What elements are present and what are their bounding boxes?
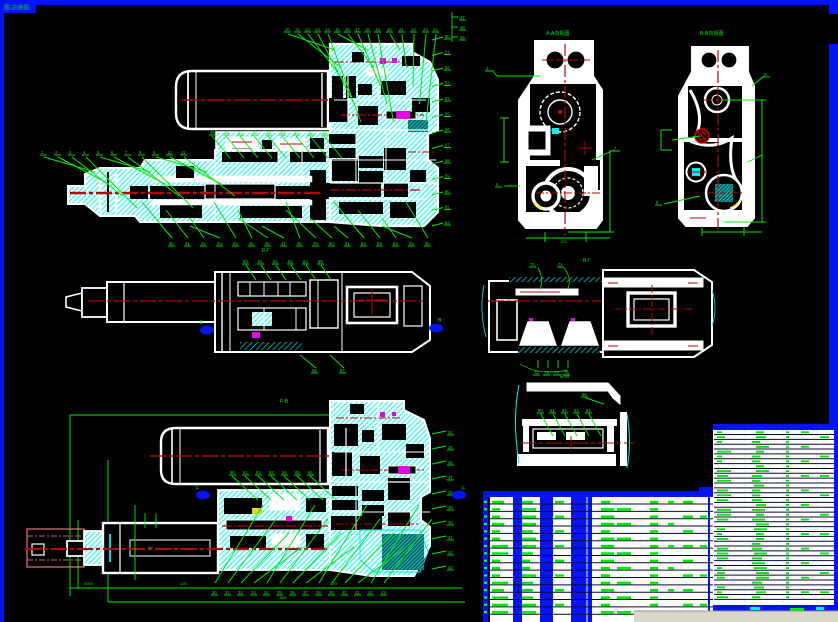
svg-text:90: 90 [230, 470, 235, 475]
svg-text:48: 48 [460, 25, 465, 30]
svg-text:41: 41 [185, 241, 190, 246]
svg-text:61: 61 [445, 205, 450, 210]
svg-text:22: 22 [411, 27, 416, 32]
svg-text:27: 27 [238, 130, 243, 135]
svg-text:91: 91 [243, 470, 248, 475]
svg-text:38: 38 [316, 590, 321, 595]
svg-text:21: 21 [399, 27, 404, 32]
svg-text:25: 25 [210, 130, 215, 135]
svg-text:28: 28 [252, 130, 257, 135]
svg-text:320: 320 [330, 581, 337, 586]
svg-text:46: 46 [265, 241, 270, 246]
svg-text:51: 51 [345, 241, 350, 246]
svg-text:560: 560 [280, 595, 287, 600]
svg-text:43: 43 [381, 590, 386, 595]
svg-text:F-B: F-B [280, 399, 289, 405]
svg-text:56: 56 [445, 127, 450, 132]
svg-text:49: 49 [460, 35, 465, 40]
svg-text:62: 62 [445, 220, 450, 225]
svg-text:Е-М: Е-М [560, 374, 569, 380]
svg-text:74: 74 [554, 370, 559, 375]
svg-text:42: 42 [368, 590, 373, 595]
svg-text:40: 40 [342, 590, 347, 595]
svg-text:39: 39 [329, 590, 334, 595]
svg-text:49: 49 [313, 241, 318, 246]
svg-text:42: 42 [201, 241, 206, 246]
svg-text:40: 40 [448, 520, 453, 525]
svg-text:47: 47 [281, 241, 286, 246]
svg-text:90: 90 [148, 545, 153, 550]
svg-text:32: 32 [238, 590, 243, 595]
svg-text:F: F [462, 486, 465, 492]
svg-text:10: 10 [285, 27, 290, 32]
svg-text:37: 37 [303, 590, 308, 595]
svg-text:94: 94 [282, 470, 287, 475]
svg-text:53: 53 [445, 81, 450, 86]
svg-text:67: 67 [340, 368, 345, 373]
svg-text:41: 41 [355, 590, 360, 595]
svg-text:37: 37 [448, 475, 453, 480]
svg-text:86: 86 [582, 392, 587, 397]
svg-text:43: 43 [217, 241, 222, 246]
svg-text:42: 42 [448, 550, 453, 555]
svg-text:14: 14 [325, 27, 330, 32]
svg-text:17: 17 [355, 27, 360, 32]
svg-text:93: 93 [269, 470, 274, 475]
svg-text:53: 53 [377, 241, 382, 246]
svg-text:55: 55 [445, 112, 450, 117]
svg-text:62: 62 [273, 259, 278, 264]
svg-text:52: 52 [361, 241, 366, 246]
svg-text:36: 36 [290, 590, 295, 595]
svg-text:30: 30 [212, 590, 217, 595]
svg-text:20: 20 [387, 27, 392, 32]
svg-text:19: 19 [375, 27, 380, 32]
svg-text:81: 81 [550, 408, 555, 413]
svg-text:63: 63 [288, 259, 293, 264]
svg-text:44: 44 [233, 241, 238, 246]
svg-text:43: 43 [448, 565, 453, 570]
svg-text:30: 30 [280, 130, 285, 135]
svg-text:F: F [196, 486, 199, 492]
svg-text:60: 60 [445, 189, 450, 194]
svg-text:16: 16 [345, 27, 350, 32]
svg-text:83: 83 [574, 408, 579, 413]
svg-text:48: 48 [297, 241, 302, 246]
svg-text:51: 51 [445, 50, 450, 55]
svg-text:41: 41 [448, 535, 453, 540]
svg-text:35: 35 [448, 445, 453, 450]
svg-text:64: 64 [303, 259, 308, 264]
svg-text:34: 34 [264, 590, 269, 595]
svg-text:58: 58 [445, 158, 450, 163]
svg-text:26: 26 [224, 130, 229, 135]
svg-text:56: 56 [425, 241, 430, 246]
svg-text:34: 34 [448, 430, 453, 435]
svg-text:32: 32 [308, 130, 313, 135]
svg-text:24: 24 [433, 27, 438, 32]
svg-text:B-B向视图: B-B向视图 [700, 30, 723, 37]
svg-text:92: 92 [256, 470, 261, 475]
svg-text:35: 35 [277, 590, 282, 595]
svg-text:39: 39 [448, 505, 453, 510]
svg-text:66: 66 [312, 368, 317, 373]
svg-text:50: 50 [329, 241, 334, 246]
svg-text:82: 82 [562, 408, 567, 413]
svg-text:57: 57 [445, 143, 450, 148]
svg-text:11: 11 [181, 150, 186, 155]
svg-text:125: 125 [180, 581, 187, 586]
svg-text:33: 33 [251, 590, 256, 595]
svg-text:70: 70 [530, 262, 535, 267]
svg-text:60: 60 [243, 259, 248, 264]
svg-text:31: 31 [294, 130, 299, 135]
svg-text:47: 47 [460, 15, 465, 20]
svg-text:55: 55 [409, 241, 414, 246]
svg-text:54: 54 [445, 96, 450, 101]
svg-text:23: 23 [423, 27, 428, 32]
svg-text:13: 13 [315, 27, 320, 32]
svg-text:61: 61 [258, 259, 263, 264]
svg-text:73: 73 [544, 370, 549, 375]
svg-text:33: 33 [322, 130, 327, 135]
svg-text:31: 31 [225, 590, 230, 595]
svg-text:59: 59 [445, 174, 450, 179]
svg-text:80: 80 [538, 408, 543, 413]
svg-text:65: 65 [318, 259, 323, 264]
svg-text:52: 52 [445, 65, 450, 70]
svg-text:36: 36 [448, 460, 453, 465]
svg-text:50: 50 [445, 34, 450, 39]
svg-text:40: 40 [169, 241, 174, 246]
svg-text:2000: 2000 [84, 581, 94, 586]
svg-text:71: 71 [558, 262, 563, 267]
svg-text:120: 120 [560, 239, 567, 244]
svg-text:10: 10 [167, 150, 172, 155]
svg-text:Е-Г: Е-Г [262, 248, 270, 254]
svg-text:12: 12 [305, 27, 310, 32]
svg-text:11: 11 [295, 27, 300, 32]
svg-text:15: 15 [335, 27, 340, 32]
svg-text:84: 84 [586, 408, 591, 413]
svg-text:54: 54 [393, 241, 398, 246]
svg-text:图-总装图: 图-总装图 [4, 4, 29, 12]
svg-text:96: 96 [308, 470, 313, 475]
svg-text:18: 18 [365, 27, 370, 32]
svg-text:A-A向视图: A-A向视图 [546, 30, 569, 37]
svg-text:B-Г: B-Г [583, 258, 591, 264]
svg-text:95: 95 [295, 470, 300, 475]
svg-text:29: 29 [266, 130, 271, 135]
svg-text:45: 45 [249, 241, 254, 246]
